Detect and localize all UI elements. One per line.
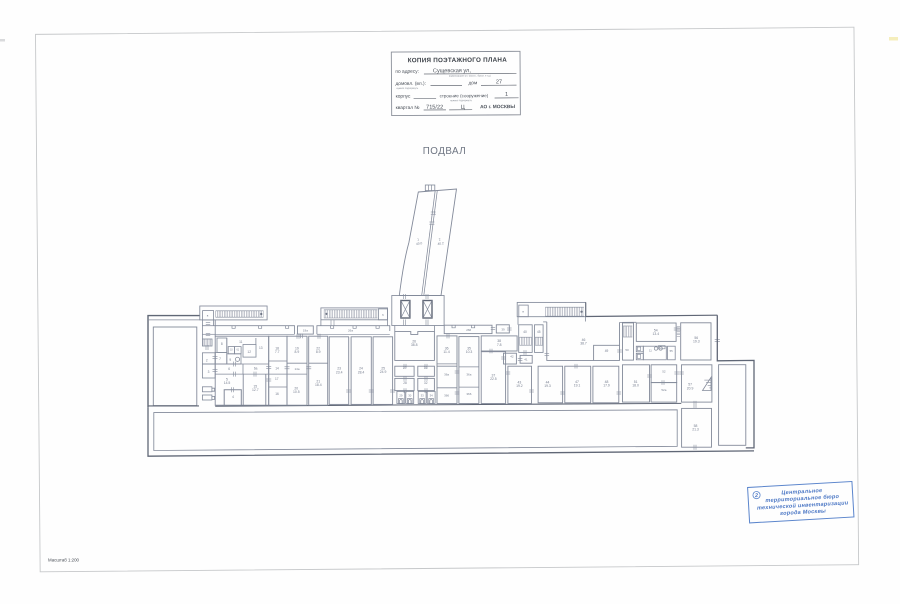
svg-text:40.0: 40.0	[416, 241, 423, 246]
svg-text:49: 49	[605, 349, 609, 353]
svg-text:строение (сооружение): строение (сооружение)	[440, 93, 489, 98]
svg-text:21.3: 21.3	[692, 428, 699, 432]
svg-text:28: 28	[403, 381, 407, 385]
svg-text:11: 11	[239, 340, 243, 344]
svg-text:45: 45	[537, 330, 541, 334]
svg-text:7: 7	[219, 357, 221, 361]
svg-text:17: 17	[275, 377, 279, 381]
svg-text:14.5: 14.5	[224, 381, 231, 385]
svg-text:АО г. МОСКВЫ: АО г. МОСКВЫ	[480, 104, 515, 110]
svg-text:17.9: 17.9	[603, 384, 610, 388]
svg-text:10.5: 10.5	[293, 390, 300, 394]
svg-text:3: 3	[208, 370, 210, 374]
svg-text:9: 9	[229, 358, 231, 362]
svg-text:8.9: 8.9	[295, 350, 300, 354]
svg-text:2: 2	[754, 493, 758, 499]
svg-text:33: 33	[421, 394, 425, 398]
svg-text:КОПИЯ ПОЭТАЖНОГО ПЛАНА: КОПИЯ ПОЭТАЖНОГО ПЛАНА	[408, 57, 508, 65]
svg-text:32: 32	[424, 381, 428, 385]
svg-text:10.3: 10.3	[466, 350, 473, 354]
svg-text:нужное подчеркнуть: нужное подчеркнуть	[450, 100, 472, 102]
svg-text:28.4: 28.4	[358, 370, 365, 374]
svg-text:52: 52	[662, 370, 666, 374]
svg-text:36а: 36а	[444, 373, 449, 377]
svg-text:наименование ул. (просп., буль: наименование ул. (просп., бульв. и т.д.)	[449, 75, 491, 77]
svg-text:1: 1	[505, 92, 508, 98]
svg-text:39: 39	[501, 327, 505, 331]
svg-text:42: 42	[510, 354, 514, 358]
svg-text:38.7: 38.7	[580, 342, 587, 346]
svg-text:13: 13	[259, 346, 263, 350]
svg-text:4: 4	[232, 395, 234, 399]
svg-text:корпус: корпус	[396, 95, 411, 100]
svg-text:38.8: 38.8	[411, 343, 418, 347]
svg-text:12: 12	[247, 350, 251, 354]
svg-text:квартал №: квартал №	[396, 105, 420, 111]
svg-text:в: в	[522, 309, 524, 313]
svg-text:6а: 6а	[254, 366, 258, 370]
svg-text:6: 6	[228, 367, 230, 371]
svg-text:дом: дом	[468, 81, 477, 86]
svg-text:366: 366	[444, 394, 449, 398]
svg-text:б: б	[382, 313, 384, 317]
svg-text:18.0: 18.0	[632, 384, 639, 388]
svg-text:домовл. (вл.):: домовл. (вл.):	[395, 81, 425, 87]
svg-text:12.7: 12.7	[252, 388, 259, 392]
svg-text:14: 14	[275, 366, 279, 370]
svg-text:36а: 36а	[466, 373, 471, 377]
svg-text:нужное подчеркнуть: нужное подчеркнуть	[397, 88, 419, 90]
svg-text:40.2: 40.2	[437, 241, 444, 246]
svg-text:19.3: 19.3	[693, 340, 700, 344]
svg-text:10: 10	[230, 348, 233, 351]
svg-text:19а: 19а	[303, 328, 308, 332]
svg-text:8: 8	[221, 342, 223, 346]
svg-text:34: 34	[430, 394, 434, 398]
svg-text:52а: 52а	[661, 388, 666, 392]
svg-text:7.7: 7.7	[275, 350, 280, 354]
svg-text:11: 11	[649, 348, 652, 352]
svg-text:27: 27	[496, 79, 502, 85]
svg-text:по адресу:: по адресу:	[395, 70, 419, 75]
svg-text:61: 61	[236, 349, 239, 352]
svg-text:40: 40	[523, 330, 527, 334]
svg-text:41: 41	[524, 358, 528, 362]
svg-text:24.9: 24.9	[380, 370, 387, 374]
svg-text:20.9: 20.9	[687, 386, 694, 390]
svg-text:19.3: 19.3	[544, 384, 551, 388]
svg-text:29: 29	[399, 394, 403, 398]
svg-text:7.8: 7.8	[497, 343, 502, 347]
svg-text:11.4: 11.4	[443, 350, 449, 354]
svg-text:ПОДВАЛ: ПОДВАЛ	[423, 146, 466, 157]
svg-text:366: 366	[466, 392, 471, 396]
svg-text:50: 50	[625, 348, 629, 352]
svg-text:города Москвы: города Москвы	[780, 508, 826, 517]
svg-text:19.2: 19.2	[516, 384, 523, 388]
svg-text:в: в	[207, 314, 209, 318]
svg-text:266: 266	[466, 328, 471, 332]
svg-text:55: 55	[670, 349, 674, 353]
svg-text:18.4: 18.4	[315, 383, 322, 387]
svg-text:16: 16	[275, 392, 279, 396]
svg-text:14а: 14а	[294, 367, 299, 371]
svg-text:30: 30	[408, 394, 412, 398]
svg-text:23.4: 23.4	[336, 370, 343, 374]
svg-text:22.5: 22.5	[490, 377, 497, 381]
svg-text:26а: 26а	[348, 329, 353, 333]
svg-text:19.1: 19.1	[574, 384, 581, 388]
svg-text:8.9: 8.9	[316, 350, 321, 354]
svg-text:13.4: 13.4	[652, 332, 659, 336]
svg-text:2: 2	[206, 358, 208, 362]
svg-text:Масштаб 1:200: Масштаб 1:200	[48, 558, 80, 563]
